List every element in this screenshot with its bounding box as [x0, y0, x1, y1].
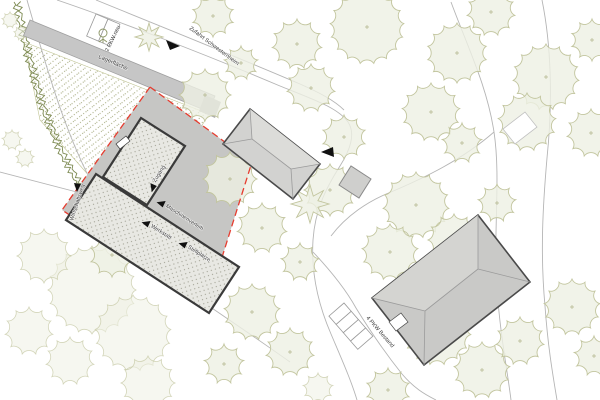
site-plan-canvas: Lagerfläche 2 PKW neu Zufahrt Schwestern… [0, 0, 600, 400]
site-plan-page: Lagerfläche 2 PKW neu Zufahrt Schwestern… [0, 0, 600, 400]
shrub-star [135, 23, 163, 51]
